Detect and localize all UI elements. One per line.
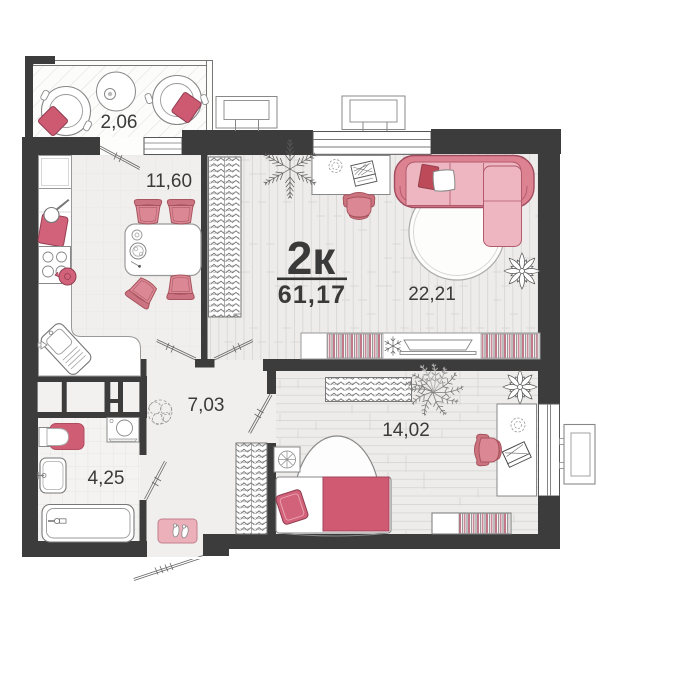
svg-text:2,06: 2,06 [101, 112, 138, 133]
svg-text:7,03: 7,03 [188, 395, 225, 416]
svg-text:2к: 2к [287, 232, 337, 284]
svg-text:22,21: 22,21 [408, 284, 456, 305]
svg-text:14,02: 14,02 [382, 420, 430, 441]
svg-text:61,17: 61,17 [278, 281, 347, 309]
svg-text:4,25: 4,25 [88, 468, 125, 489]
svg-text:11,60: 11,60 [146, 171, 192, 192]
